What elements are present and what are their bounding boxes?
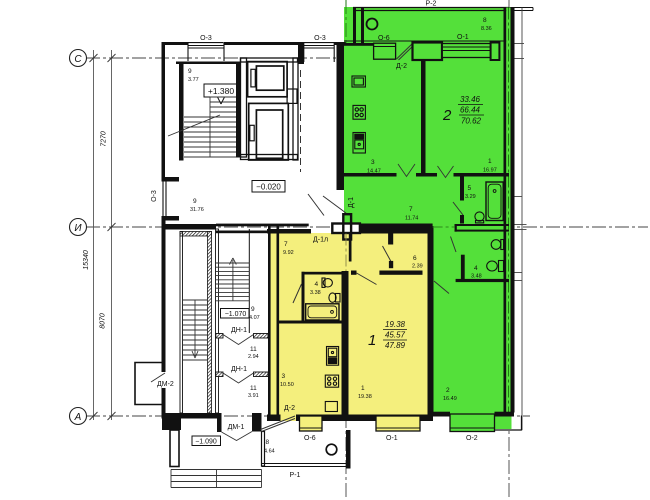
svg-text:4: 4 <box>474 265 478 272</box>
svg-text:31.76: 31.76 <box>190 207 204 213</box>
svg-text:8070: 8070 <box>100 313 107 329</box>
svg-text:15340: 15340 <box>83 250 90 270</box>
svg-text:9: 9 <box>188 68 192 75</box>
svg-text:Д-1: Д-1 <box>348 197 355 208</box>
svg-text:О-3: О-3 <box>151 190 158 202</box>
svg-text:47.89: 47.89 <box>385 341 406 350</box>
svg-text:3: 3 <box>371 159 375 166</box>
svg-text:4: 4 <box>315 281 319 288</box>
svg-text:7: 7 <box>284 241 288 248</box>
svg-text:ДН-1: ДН-1 <box>231 327 247 334</box>
svg-text:−1.070: −1.070 <box>225 311 247 318</box>
svg-text:ДМ-1: ДМ-1 <box>228 424 245 431</box>
svg-text:70.62: 70.62 <box>461 117 482 126</box>
svg-text:4.64: 4.64 <box>264 449 275 455</box>
svg-text:7270: 7270 <box>101 131 108 147</box>
svg-text:О-1: О-1 <box>457 34 469 41</box>
svg-text:2: 2 <box>442 107 452 124</box>
svg-text:3.29: 3.29 <box>465 194 476 200</box>
svg-text:19.38: 19.38 <box>385 320 406 329</box>
svg-text:О-1: О-1 <box>386 435 398 442</box>
svg-text:О-6: О-6 <box>378 35 390 42</box>
svg-text:О-2: О-2 <box>466 435 478 442</box>
svg-text:3.48: 3.48 <box>471 274 482 280</box>
svg-text:2.94: 2.94 <box>248 354 259 360</box>
svg-text:О-6: О-6 <box>304 435 316 442</box>
svg-text:9.92: 9.92 <box>283 250 294 256</box>
svg-text:Р-1: Р-1 <box>290 472 301 479</box>
svg-text:6: 6 <box>413 255 417 262</box>
svg-text:10.50: 10.50 <box>280 382 294 388</box>
svg-text:16.97: 16.97 <box>483 168 497 174</box>
svg-text:66.44: 66.44 <box>460 106 481 115</box>
svg-text:11: 11 <box>250 385 257 392</box>
svg-text:О-3: О-3 <box>200 35 212 42</box>
svg-text:3.77: 3.77 <box>188 77 199 83</box>
svg-text:8.36: 8.36 <box>481 26 492 32</box>
svg-text:Р-2: Р-2 <box>426 1 437 8</box>
svg-text:−0.020: −0.020 <box>256 183 281 192</box>
svg-text:Д-1л: Д-1л <box>313 237 328 244</box>
svg-text:45.57: 45.57 <box>385 331 406 340</box>
svg-text:3: 3 <box>282 373 286 380</box>
svg-text:1: 1 <box>368 332 376 349</box>
svg-text:8: 8 <box>483 17 487 24</box>
svg-text:3.91: 3.91 <box>248 393 259 399</box>
svg-text:9: 9 <box>251 306 255 313</box>
svg-text:19.38: 19.38 <box>358 394 372 400</box>
svg-text:А: А <box>74 412 82 423</box>
svg-text:11.74: 11.74 <box>405 216 418 222</box>
svg-text:11: 11 <box>250 346 257 353</box>
svg-text:2: 2 <box>446 387 450 394</box>
svg-text:16.49: 16.49 <box>443 396 457 402</box>
svg-text:Д-2: Д-2 <box>284 405 295 412</box>
svg-text:4.07: 4.07 <box>249 315 260 321</box>
svg-text:+1.380: +1.380 <box>208 86 235 96</box>
svg-text:ДМ-2: ДМ-2 <box>157 381 174 388</box>
svg-text:3.38: 3.38 <box>310 290 321 296</box>
svg-text:−1.090: −1.090 <box>195 439 217 446</box>
svg-text:И: И <box>74 223 82 234</box>
svg-text:2.39: 2.39 <box>412 264 423 270</box>
svg-text:ДН-1: ДН-1 <box>231 366 247 373</box>
svg-text:7: 7 <box>409 206 413 213</box>
svg-text:О-3: О-3 <box>314 35 326 42</box>
svg-text:1: 1 <box>488 158 492 165</box>
svg-text:1: 1 <box>361 385 365 392</box>
svg-text:С: С <box>74 54 82 65</box>
svg-text:8: 8 <box>266 439 270 446</box>
svg-text:33.46: 33.46 <box>460 95 481 104</box>
svg-text:Д-2: Д-2 <box>396 63 407 70</box>
svg-text:5: 5 <box>468 185 472 192</box>
svg-text:9: 9 <box>193 198 197 205</box>
